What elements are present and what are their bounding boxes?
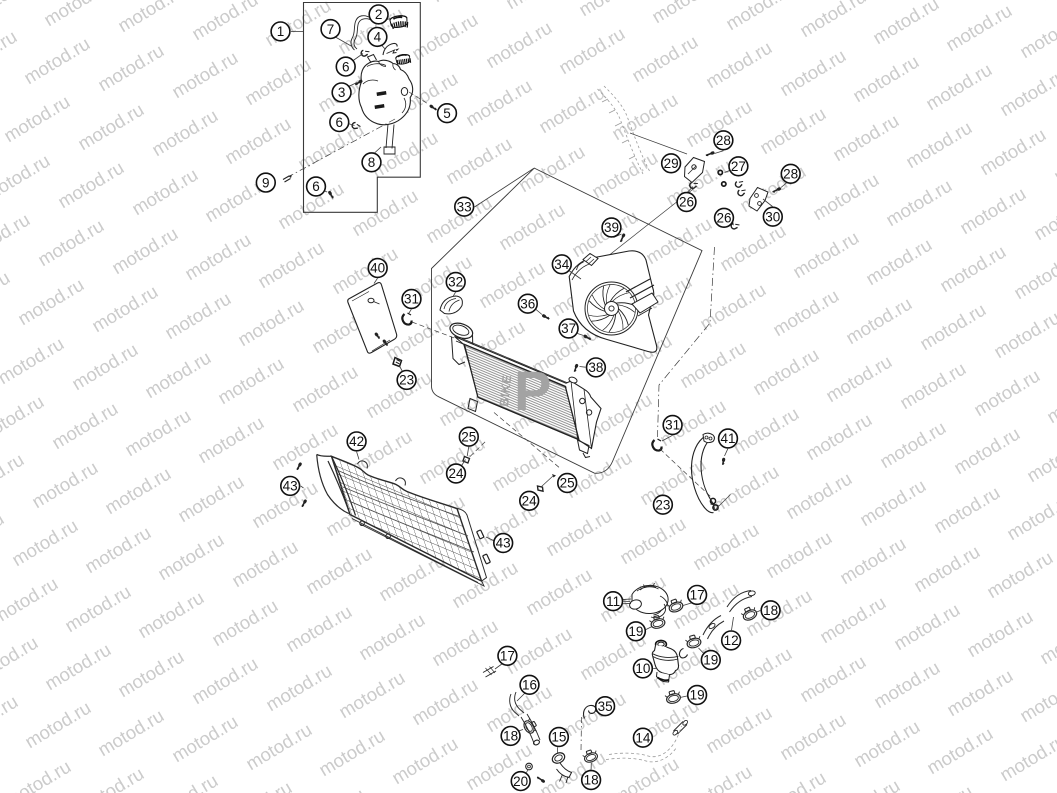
svg-text:motod.ru: motod.ru — [722, 643, 795, 699]
svg-text:motod.ru: motod.ru — [555, 23, 628, 79]
svg-text:motod.ru: motod.ru — [101, 463, 174, 519]
svg-text:motod.ru: motod.ru — [923, 723, 996, 779]
svg-text:motod.ru: motod.ru — [809, 169, 882, 225]
svg-text:motod.ru: motod.ru — [709, 461, 782, 517]
svg-text:motod.ru: motod.ru — [782, 468, 855, 524]
svg-text:motod.ru: motod.ru — [729, 403, 802, 459]
svg-text:motod.ru: motod.ru — [482, 17, 555, 73]
svg-text:motod.ru: motod.ru — [88, 281, 161, 337]
svg-text:motod.ru: motod.ru — [856, 475, 929, 531]
svg-text:motod.ru: motod.ru — [896, 358, 969, 414]
svg-text:motod.ru: motod.ru — [762, 527, 835, 583]
svg-text:motod.ru: motod.ru — [141, 347, 214, 403]
svg-text:motod.ru: motod.ru — [114, 0, 187, 36]
svg-text:motod.ru: motod.ru — [408, 674, 481, 730]
svg-text:28: 28 — [783, 167, 798, 182]
svg-text:motod.ru: motod.ru — [0, 267, 13, 323]
svg-text:3: 3 — [338, 85, 346, 100]
svg-text:8: 8 — [368, 155, 376, 170]
svg-text:35: 35 — [598, 699, 613, 714]
svg-text:30: 30 — [765, 209, 780, 224]
svg-text:31: 31 — [665, 418, 680, 433]
svg-text:27: 27 — [731, 159, 746, 174]
svg-text:motod.ru: motod.ru — [722, 0, 795, 34]
svg-text:motod.ru: motod.ru — [335, 667, 408, 723]
svg-text:7: 7 — [327, 22, 335, 37]
svg-text:29: 29 — [664, 156, 679, 171]
svg-text:39: 39 — [604, 220, 619, 235]
svg-text:motod.ru: motod.ru — [749, 344, 822, 400]
svg-text:motod.ru: motod.ru — [174, 471, 247, 527]
svg-text:5: 5 — [443, 106, 451, 121]
svg-text:motod.ru: motod.ru — [963, 606, 1036, 662]
svg-text:motod.ru: motod.ru — [0, 91, 73, 147]
svg-text:17: 17 — [690, 588, 705, 603]
svg-text:43: 43 — [496, 536, 511, 551]
svg-text:36: 36 — [520, 296, 535, 311]
svg-text:20: 20 — [513, 774, 528, 789]
svg-text:motod.ru: motod.ru — [502, 0, 575, 13]
svg-text:motod.ru: motod.ru — [74, 99, 147, 155]
svg-text:2: 2 — [375, 7, 383, 22]
svg-text:motod.ru: motod.ru — [850, 716, 923, 772]
svg-text:motod.ru: motod.ru — [842, 293, 915, 349]
svg-text:23: 23 — [655, 497, 670, 512]
svg-text:motod.ru: motod.ru — [0, 150, 53, 206]
svg-text:motod.ru: motod.ru — [0, 26, 20, 82]
svg-text:18: 18 — [584, 773, 599, 788]
svg-text:motod.ru: motod.ru — [950, 423, 1023, 479]
svg-text:motod.ru: motod.ru — [288, 361, 361, 417]
svg-text:motod.ru: motod.ru — [628, 31, 701, 87]
svg-text:motod.ru: motod.ru — [876, 417, 949, 473]
svg-text:motod.ru: motod.ru — [776, 45, 849, 101]
svg-text:motod.ru: motod.ru — [942, 0, 1015, 55]
svg-text:40: 40 — [370, 261, 385, 276]
svg-text:motod.ru: motod.ru — [1036, 613, 1057, 669]
svg-text:motod.ru: motod.ru — [228, 536, 301, 592]
svg-text:motod.ru: motod.ru — [221, 113, 294, 169]
svg-text:26: 26 — [716, 211, 731, 226]
svg-text:motod.ru: motod.ru — [408, 9, 481, 65]
svg-text:motod.ru: motod.ru — [990, 307, 1057, 363]
svg-text:16: 16 — [522, 678, 537, 693]
svg-text:motod.ru: motod.ru — [1016, 7, 1057, 63]
svg-text:motod.ru: motod.ru — [188, 653, 261, 709]
svg-text:motod.ru: motod.ru — [21, 697, 94, 753]
svg-text:motod.ru: motod.ru — [302, 543, 375, 599]
svg-text:23: 23 — [399, 373, 414, 388]
svg-text:motod.ru: motod.ru — [890, 599, 963, 655]
svg-text:motod.ru: motod.ru — [0, 508, 7, 564]
svg-text:6: 6 — [336, 115, 344, 130]
svg-text:motod.ru: motod.ru — [0, 691, 21, 747]
svg-text:motod.ru: motod.ru — [114, 646, 187, 702]
svg-text:motod.ru: motod.ru — [936, 241, 1009, 297]
svg-text:6: 6 — [342, 59, 350, 74]
svg-text:24: 24 — [448, 466, 464, 481]
svg-text:motod.ru: motod.ru — [355, 609, 428, 665]
svg-text:motod.ru: motod.ru — [20, 33, 93, 89]
svg-text:12: 12 — [724, 633, 739, 648]
svg-text:motod.ru: motod.ru — [716, 220, 789, 276]
svg-text:motod.ru: motod.ru — [796, 0, 869, 41]
svg-text:motod.ru: motod.ru — [0, 632, 41, 688]
svg-text:motod.ru: motod.ru — [28, 457, 101, 513]
svg-text:motod.ru: motod.ru — [282, 601, 355, 657]
svg-text:motod.ru: motod.ru — [1, 756, 74, 793]
svg-text:motod.ru: motod.ru — [608, 89, 681, 145]
svg-text:motod.ru: motod.ru — [168, 711, 241, 767]
svg-text:motod.ru: motod.ru — [168, 47, 241, 103]
svg-text:motod.ru: motod.ru — [588, 147, 661, 203]
svg-text:motod.ru: motod.ru — [956, 183, 1029, 239]
svg-text:motod.ru: motod.ru — [214, 353, 287, 409]
svg-text:motod.ru: motod.ru — [882, 175, 955, 231]
svg-text:motod.ru: motod.ru — [41, 639, 114, 695]
svg-text:motod.ru: motod.ru — [902, 117, 975, 173]
svg-text:motod.ru: motod.ru — [94, 705, 167, 761]
svg-text:motod.ru: motod.ru — [910, 541, 983, 597]
svg-text:motod.ru: motod.ru — [40, 0, 113, 30]
svg-text:1: 1 — [277, 24, 285, 39]
svg-text:motod.ru: motod.ru — [488, 440, 561, 496]
svg-text:25: 25 — [461, 429, 476, 444]
svg-text:motod.ru: motod.ru — [903, 781, 976, 793]
svg-text:9: 9 — [262, 175, 270, 190]
svg-text:motod.ru: motod.ru — [515, 141, 588, 197]
svg-text:24: 24 — [522, 494, 538, 509]
svg-text:motod.ru: motod.ru — [682, 761, 755, 793]
svg-text:motod.ru: motod.ru — [0, 209, 33, 265]
svg-text:4: 4 — [374, 30, 382, 45]
svg-text:motod.ru: motod.ru — [756, 103, 829, 159]
svg-text:14: 14 — [635, 730, 651, 745]
svg-text:31: 31 — [404, 292, 419, 307]
svg-text:motod.ru: motod.ru — [1003, 489, 1057, 545]
svg-text:motod.ru: motod.ru — [776, 709, 849, 765]
svg-text:motod.ru: motod.ru — [849, 51, 922, 107]
svg-text:motod.ru: motod.ru — [222, 777, 295, 793]
svg-text:motod.ru: motod.ru — [442, 133, 515, 189]
svg-text:motod.ru: motod.ru — [34, 215, 107, 271]
svg-text:motod.ru: motod.ru — [1030, 189, 1057, 245]
svg-text:motod.ru: motod.ru — [495, 199, 568, 255]
svg-text:15: 15 — [551, 730, 566, 745]
svg-text:motod.ru: motod.ru — [1023, 431, 1057, 487]
svg-text:motod.ru: motod.ru — [61, 581, 134, 637]
svg-text:motod.ru: motod.ru — [254, 237, 327, 293]
svg-text:motod.ru: motod.ru — [368, 127, 441, 183]
svg-text:motod.ru: motod.ru — [242, 719, 315, 775]
svg-text:motod.ru: motod.ru — [702, 702, 775, 758]
svg-text:motod.ru: motod.ru — [836, 533, 909, 589]
svg-text:motod.ru: motod.ru — [769, 285, 842, 341]
svg-text:11: 11 — [606, 594, 620, 609]
svg-text:19: 19 — [690, 688, 705, 703]
svg-text:18: 18 — [763, 603, 778, 618]
svg-text:motod.ru: motod.ru — [862, 234, 935, 290]
svg-text:motod.ru: motod.ru — [1043, 372, 1057, 428]
svg-text:motod.ru: motod.ru — [922, 59, 995, 115]
svg-text:motod.ru: motod.ru — [616, 513, 689, 569]
svg-text:motod.ru: motod.ru — [930, 482, 1003, 538]
svg-text:motod.ru: motod.ru — [609, 753, 682, 793]
svg-text:motod.ru: motod.ru — [522, 564, 595, 620]
svg-text:motod.ru: motod.ru — [996, 730, 1057, 786]
svg-text:motod.ru: motod.ru — [816, 592, 889, 648]
svg-text:motod.ru: motod.ru — [0, 391, 47, 447]
svg-text:motod.ru: motod.ru — [462, 75, 535, 131]
svg-text:motod.ru: motod.ru — [154, 529, 227, 585]
svg-text:motod.ru: motod.ru — [81, 522, 154, 578]
svg-text:19: 19 — [703, 653, 718, 668]
svg-text:motod.ru: motod.ru — [970, 365, 1043, 421]
svg-text:motod.ru: motod.ru — [830, 775, 903, 793]
svg-text:26: 26 — [679, 195, 694, 210]
svg-text:28: 28 — [716, 133, 731, 148]
svg-text:motod.ru: motod.ru — [0, 573, 61, 629]
svg-text:motod.ru: motod.ru — [696, 279, 769, 335]
svg-text:motod.ru: motod.ru — [636, 454, 709, 510]
svg-text:motod.ru: motod.ru — [148, 770, 221, 793]
svg-text:motod.ru: motod.ru — [181, 229, 254, 285]
svg-text:33: 33 — [457, 199, 472, 214]
svg-text:motod.ru: motod.ru — [94, 40, 167, 96]
svg-text:motod.ru: motod.ru — [648, 0, 721, 27]
svg-text:motod.ru: motod.ru — [789, 227, 862, 283]
svg-text:motod.ru: motod.ru — [0, 749, 1, 793]
svg-text:motod.ru: motod.ru — [689, 519, 762, 575]
svg-text:motod.ru: motod.ru — [388, 733, 461, 789]
svg-text:motod.ru: motod.ru — [562, 447, 635, 503]
svg-text:motod.ru: motod.ru — [822, 351, 895, 407]
svg-text:38: 38 — [588, 360, 603, 375]
svg-text:motod.ru: motod.ru — [796, 651, 869, 707]
svg-text:motod.ru: motod.ru — [161, 288, 234, 344]
svg-text:motod.ru: motod.ru — [121, 405, 194, 461]
svg-text:motod.ru: motod.ru — [916, 299, 989, 355]
svg-text:motod.ru: motod.ru — [68, 339, 141, 395]
svg-text:motod.ru: motod.ru — [262, 660, 335, 716]
svg-text:motod.ru: motod.ru — [943, 665, 1016, 721]
svg-text:37: 37 — [561, 321, 576, 336]
svg-text:6: 6 — [312, 179, 320, 194]
svg-text:motod.ru: motod.ru — [1010, 248, 1057, 304]
svg-text:motod.ru: motod.ru — [802, 409, 875, 465]
svg-text:motod.ru: motod.ru — [542, 505, 615, 561]
svg-text:motod.ru: motod.ru — [869, 0, 942, 48]
svg-text:motod.ru: motod.ru — [208, 595, 281, 651]
svg-text:motod.ru: motod.ru — [295, 784, 368, 793]
svg-text:motod.ru: motod.ru — [870, 657, 943, 713]
svg-text:motod.ru: motod.ru — [575, 0, 648, 20]
svg-text:motod.ru: motod.ru — [74, 763, 147, 793]
svg-text:motod.ru: motod.ru — [234, 295, 307, 351]
svg-text:motod.ru: motod.ru — [188, 0, 261, 44]
svg-text:P: P — [514, 359, 551, 422]
svg-text:motod.ru: motod.ru — [976, 124, 1049, 180]
svg-text:motod.ru: motod.ru — [128, 164, 201, 220]
svg-text:25: 25 — [560, 476, 575, 491]
svg-text:17: 17 — [500, 649, 515, 664]
svg-text:motod.ru: motod.ru — [535, 82, 608, 138]
svg-text:motod.ru: motod.ru — [428, 615, 501, 671]
svg-text:18: 18 — [503, 729, 518, 744]
svg-text:motod.ru: motod.ru — [756, 767, 829, 793]
svg-text:32: 32 — [448, 275, 463, 290]
svg-text:motod.ru: motod.ru — [0, 449, 27, 505]
svg-text:motod.ru: motod.ru — [315, 725, 388, 781]
svg-text:motod.ru: motod.ru — [702, 37, 775, 93]
svg-text:motod.ru: motod.ru — [14, 274, 87, 330]
svg-text:motod.ru: motod.ru — [134, 587, 207, 643]
svg-text:motod.ru: motod.ru — [108, 223, 181, 279]
svg-text:motod.ru: motod.ru — [996, 65, 1057, 121]
svg-text:10: 10 — [635, 661, 650, 676]
svg-text:motod.ru: motod.ru — [0, 0, 40, 22]
svg-text:42: 42 — [349, 434, 364, 449]
svg-text:19: 19 — [628, 624, 643, 639]
svg-text:motod.ru: motod.ru — [8, 515, 81, 571]
svg-text:motod.ru: motod.ru — [428, 0, 501, 6]
svg-text:motod.ru: motod.ru — [0, 333, 67, 389]
svg-text:motod.ru: motod.ru — [669, 578, 742, 634]
svg-text:41: 41 — [720, 431, 735, 446]
svg-text:motod.ru: motod.ru — [983, 547, 1056, 603]
svg-text:motod.ru: motod.ru — [676, 337, 749, 393]
svg-text:motod.ru: motod.ru — [1016, 671, 1057, 727]
svg-text:motod.ru: motod.ru — [1050, 131, 1057, 187]
svg-text:motod.ru: motod.ru — [54, 157, 127, 213]
svg-text:motod.ru: motod.ru — [194, 412, 267, 468]
svg-text:motod.ru: motod.ru — [829, 110, 902, 166]
svg-text:motod.ru: motod.ru — [48, 398, 121, 454]
svg-text:43: 43 — [283, 479, 298, 494]
svg-text:motod.ru: motod.ru — [1036, 0, 1057, 4]
svg-text:34: 34 — [554, 257, 570, 272]
svg-text:motod.ru: motod.ru — [148, 105, 221, 161]
